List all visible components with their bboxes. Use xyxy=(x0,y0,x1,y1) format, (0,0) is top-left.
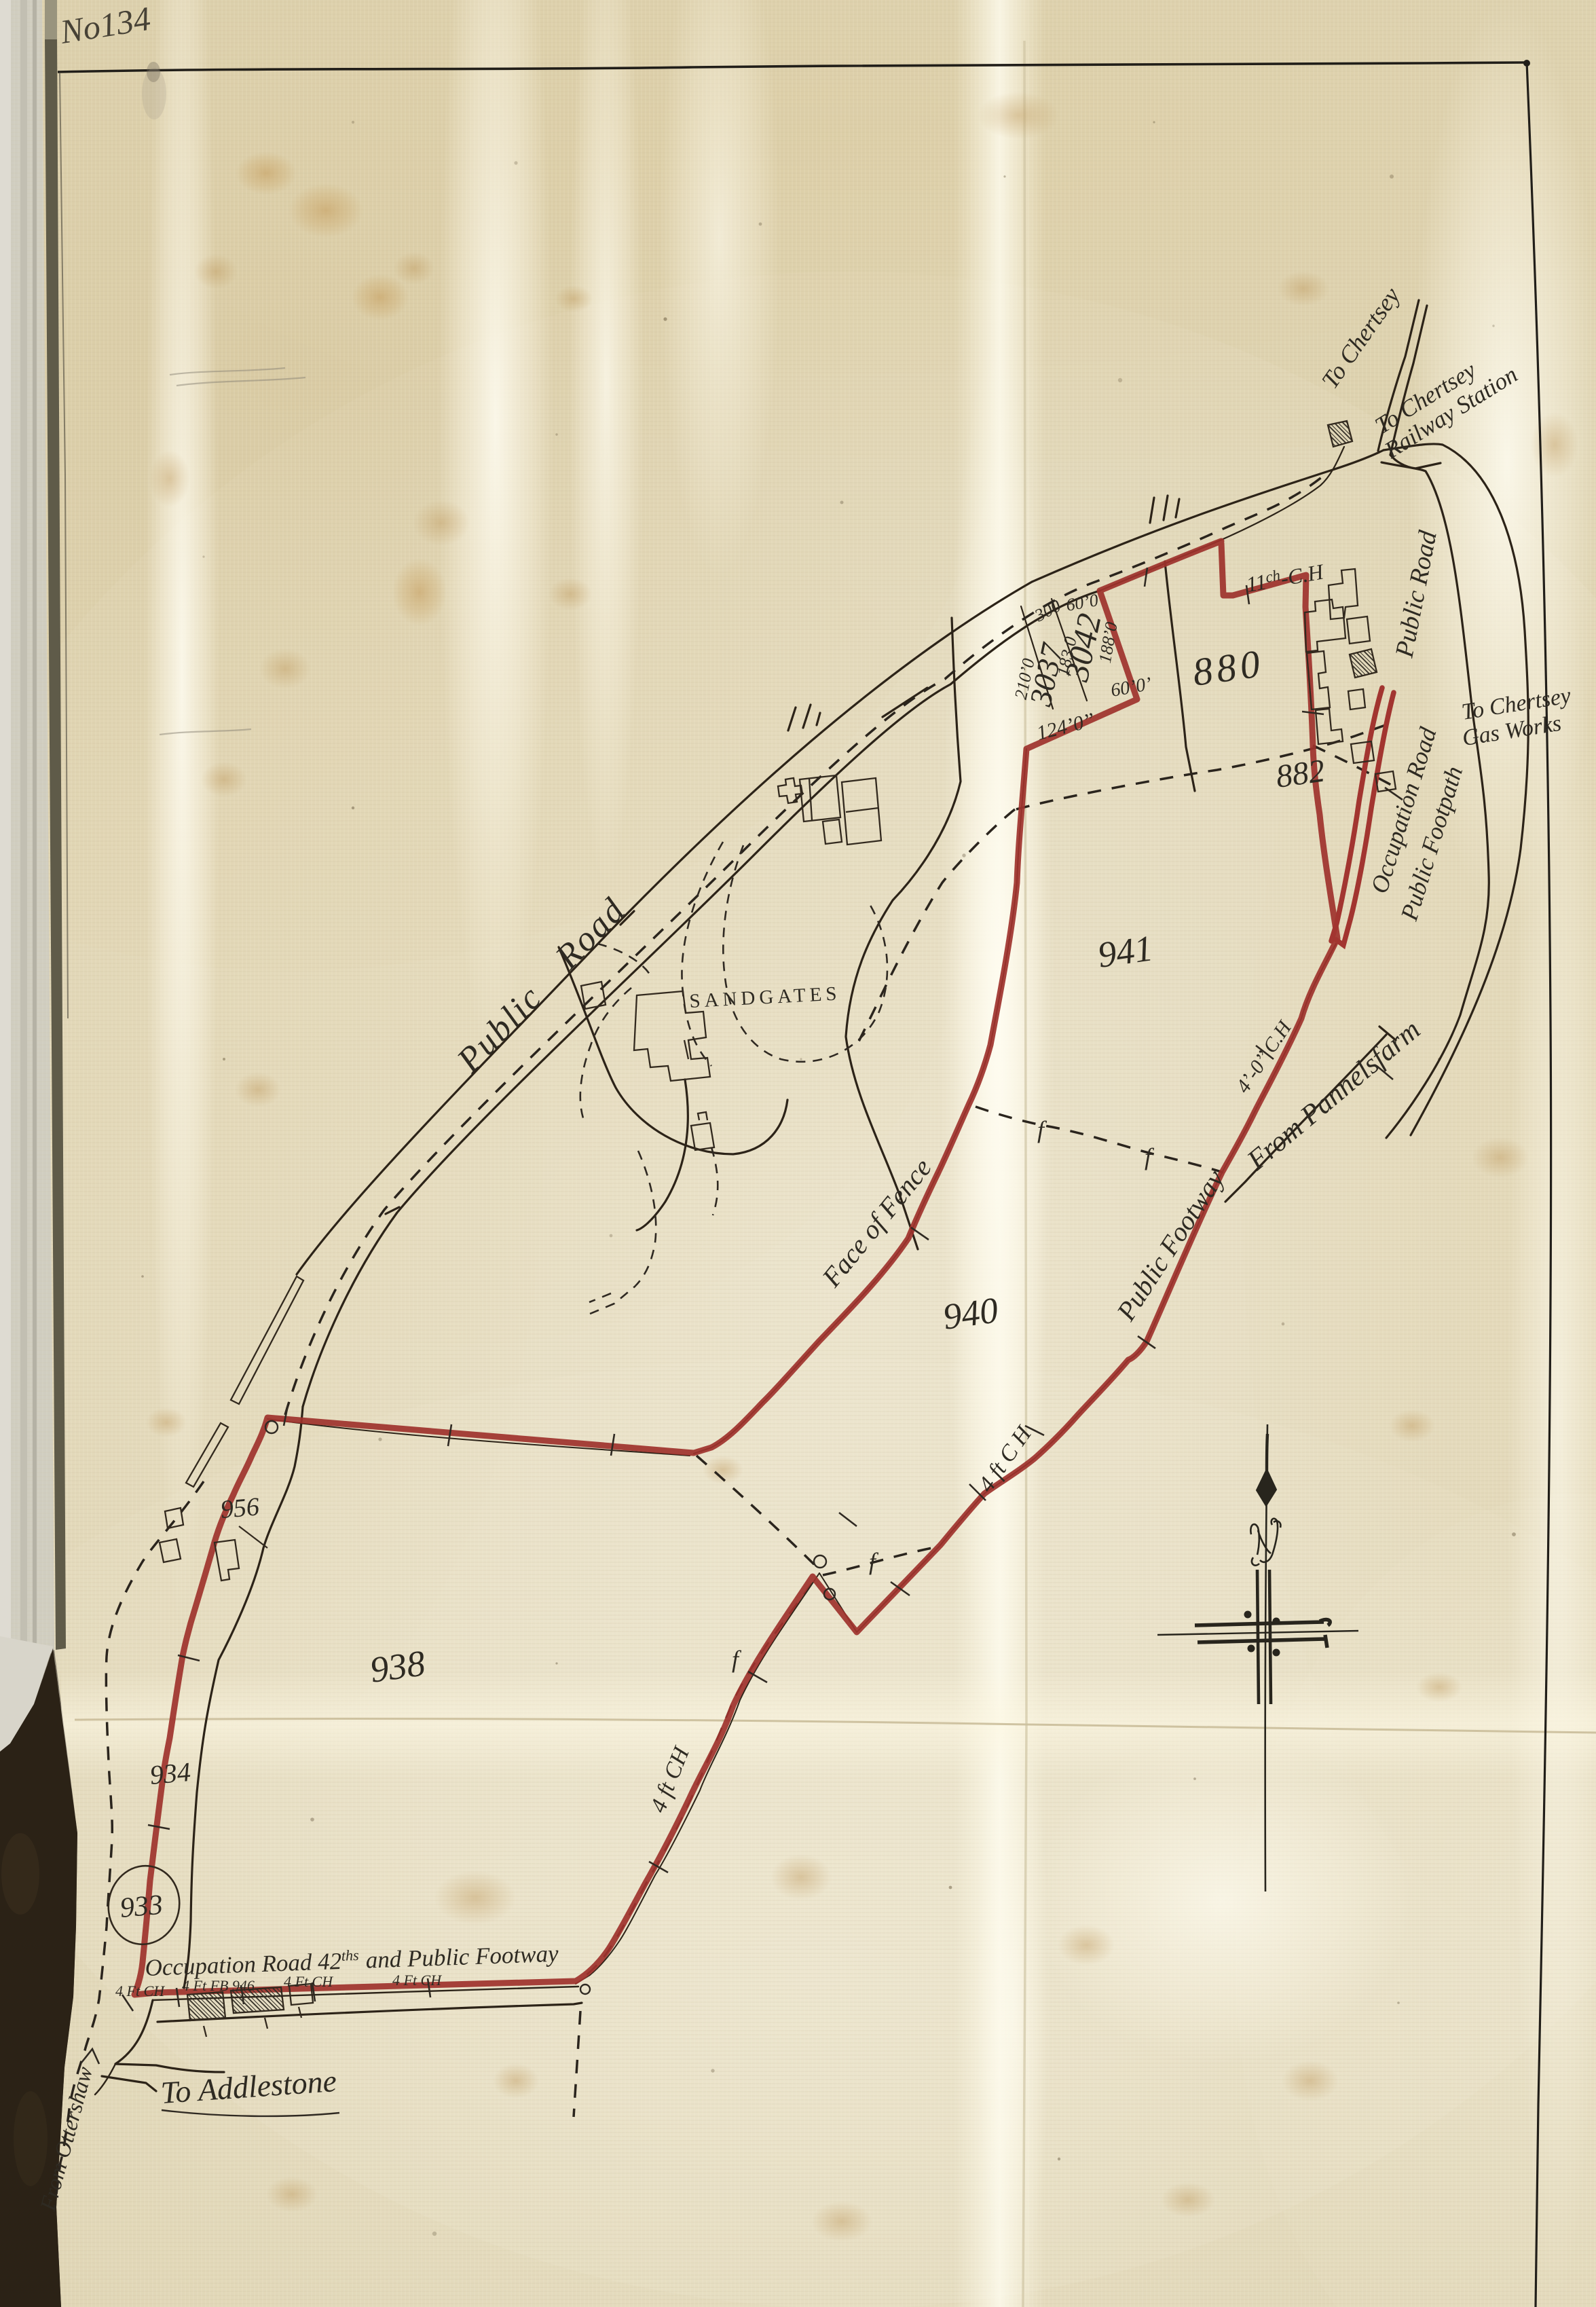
svg-text:4 Ft FB 946: 4 Ft FB 946 xyxy=(182,1977,255,1994)
svg-text:938: 938 xyxy=(367,1642,428,1691)
svg-text:940: 940 xyxy=(940,1289,1001,1337)
svg-text:934: 934 xyxy=(149,1756,192,1790)
svg-text:882: 882 xyxy=(1274,752,1327,795)
svg-text:4 Ft CH: 4 Ft CH xyxy=(284,1973,333,1990)
svg-text:941: 941 xyxy=(1095,927,1155,976)
svg-text:4 Ft CH: 4 Ft CH xyxy=(392,1972,442,1989)
svg-text:956: 956 xyxy=(219,1492,260,1524)
svg-text:4 Ft CH: 4 Ft CH xyxy=(115,1982,165,1999)
svg-text:933: 933 xyxy=(119,1889,164,1924)
